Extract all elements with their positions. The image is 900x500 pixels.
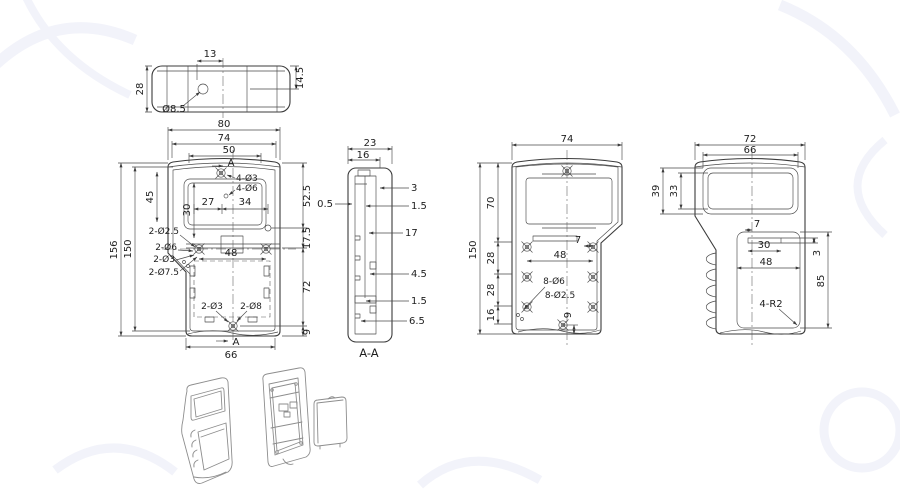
dim-back-33: 33 <box>669 185 680 198</box>
iso-battery-cover <box>314 397 347 449</box>
dim-section-23: 23 <box>364 138 377 149</box>
inside-slot <box>533 236 577 241</box>
dim-inside-48: 48 <box>554 250 567 261</box>
dim-inside-28-lower: 28 <box>486 284 497 297</box>
dim-front-45: 45 <box>145 191 156 204</box>
dim-front-9: 9 <box>302 329 313 335</box>
dim-section-16: 16 <box>357 150 370 161</box>
dim-inside-150: 150 <box>468 240 479 259</box>
label-front-2d3-bottom: 2-Ø3 <box>201 301 223 312</box>
section-body <box>348 168 392 342</box>
dim-top-13: 13 <box>204 49 217 60</box>
dim-inside-16: 16 <box>486 309 497 322</box>
label-front-2d8: 2-Ø8 <box>240 301 262 312</box>
view-top: 13 28 14.5 Ø8.5 <box>135 49 306 118</box>
label-front-4d6: 4-Ø6 <box>236 183 258 194</box>
section-marker-a-top: A <box>228 158 235 169</box>
dim-front-156: 156 <box>109 240 120 259</box>
drawing-canvas: 13 28 14.5 Ø8.5 80 74 50 <box>0 0 900 500</box>
inside-screen-opening <box>526 178 612 224</box>
back-display-window <box>703 168 798 214</box>
iso-front-shell <box>182 378 233 484</box>
dim-inside-7: 7 <box>575 235 581 246</box>
dim-back-30: 30 <box>758 240 771 251</box>
view-inside: 74 150 70 28 28 16 7 48 8-Ø6 8-Ø2.5 9 <box>468 134 622 346</box>
back-outline <box>695 159 805 335</box>
dim-inside-74: 74 <box>561 134 574 145</box>
dim-section-17: 17 <box>405 228 418 239</box>
view-front: 80 74 50 156 150 45 30 27 34 48 52.5 17.… <box>109 119 313 361</box>
section-title: A-A <box>359 346 379 360</box>
label-front-2d2_5: 2-Ø2.5 <box>149 226 179 237</box>
dim-section-4_5: 4.5 <box>411 269 427 280</box>
iso-back-shell <box>263 368 310 467</box>
dim-front-74: 74 <box>218 133 231 144</box>
dim-front-80: 80 <box>218 119 231 130</box>
dim-front-27: 27 <box>202 197 215 208</box>
front-screw-boss-top <box>216 168 227 179</box>
dim-front-17_5: 17.5 <box>302 227 313 249</box>
view-section-aa: 23 16 3 1.5 0.5 17 4.5 1.5 6.5 A-A <box>317 138 427 360</box>
dim-back-7: 7 <box>754 219 760 230</box>
dim-back-72: 72 <box>744 134 757 145</box>
dim-section-3: 3 <box>411 183 417 194</box>
label-inside-8d6: 8-Ø6 <box>543 276 565 287</box>
dim-section-6_5: 6.5 <box>409 316 425 327</box>
label-front-2d6: 2-Ø6 <box>155 242 177 253</box>
view-back: 72 66 39 33 7 30 48 3 85 4-R2 <box>651 134 832 345</box>
dim-back-85: 85 <box>816 275 827 288</box>
section-marker-a-bottom: A <box>233 337 240 348</box>
dim-back-48: 48 <box>760 257 773 268</box>
label-front-4d3: 4-Ø3 <box>236 173 258 184</box>
dim-front-30: 30 <box>182 204 193 217</box>
dim-inside-9: 9 <box>563 312 574 318</box>
label-back-4r2: 4-R2 <box>759 299 782 310</box>
dim-top-14_5: 14.5 <box>295 67 306 89</box>
dim-inside-70: 70 <box>486 197 497 210</box>
dim-back-66: 66 <box>744 145 757 156</box>
dim-inside-28-upper: 28 <box>486 252 497 265</box>
dim-front-34: 34 <box>239 197 252 208</box>
dim-front-48: 48 <box>225 248 238 259</box>
dim-front-52_5: 52.5 <box>302 185 313 207</box>
dim-front-66: 66 <box>225 350 238 361</box>
label-front-2d3: 2-Ø3 <box>153 254 175 265</box>
dim-back-3: 3 <box>812 250 823 256</box>
dim-top-28: 28 <box>135 83 146 96</box>
back-grip-ribs <box>706 253 716 329</box>
label-front-2d7_5: 2-Ø7.5 <box>149 267 179 278</box>
dim-section-1_5-lower: 1.5 <box>411 296 427 307</box>
dim-front-150: 150 <box>123 239 134 258</box>
dim-back-39: 39 <box>651 185 662 198</box>
enclosure-engineering-drawing: 13 28 14.5 Ø8.5 80 74 50 <box>0 0 900 500</box>
label-inside-8d2_5: 8-Ø2.5 <box>545 290 575 301</box>
label-top-hole: Ø8.5 <box>162 103 186 115</box>
dim-section-1_5-upper: 1.5 <box>411 201 427 212</box>
dim-front-50: 50 <box>223 145 236 156</box>
dim-section-0_5: 0.5 <box>317 199 333 210</box>
dim-front-72: 72 <box>302 281 313 294</box>
